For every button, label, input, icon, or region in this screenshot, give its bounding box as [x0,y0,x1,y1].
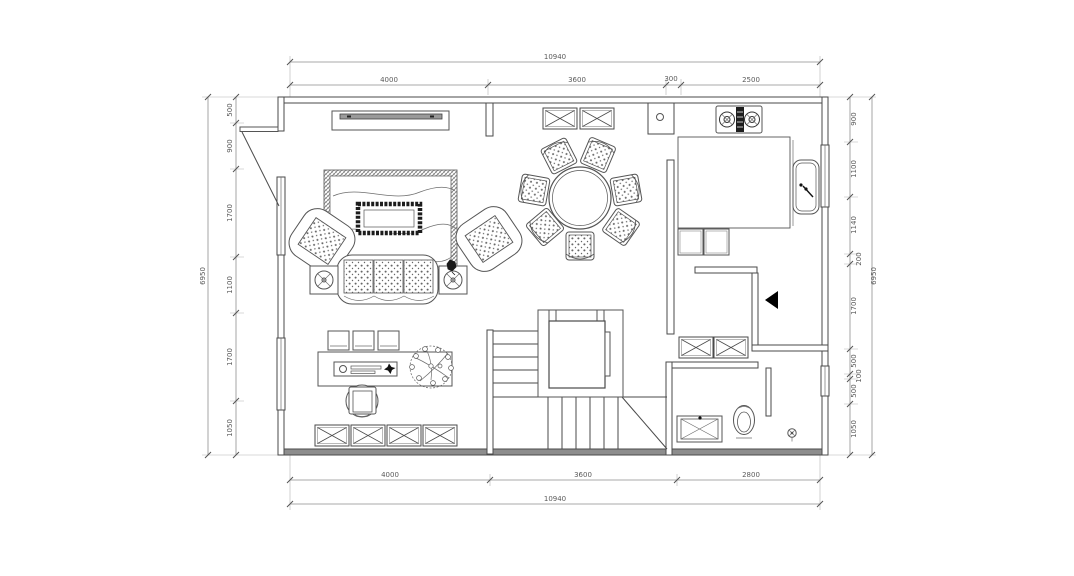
dining-chair-icon [518,174,550,206]
dim-bottom-overall: 10940 [544,495,566,503]
entry-door-swing [242,132,279,206]
dim-right-seg-8: 500 [850,384,858,397]
low-cabinet-icon [315,425,349,446]
window-right-bath [821,366,829,396]
dining-area [518,108,664,260]
wall-bath-top [666,362,758,368]
dim-right-seg-4: 200 [855,252,863,265]
wall-bath-left [666,362,672,455]
window-box-icon [543,108,577,129]
dim-left-seg-1: 500 [226,103,234,116]
dimension-chain-right: 900 1100 1140 200 1700 500 100 500 1050 … [828,94,878,458]
stair-upper-flight [493,331,538,397]
dim-right-seg-6: 500 [850,354,858,367]
dim-left-seg-6: 1050 [226,419,234,437]
dim-right-seg-7: 100 [855,369,863,382]
stove-icon [716,106,762,133]
dim-top-seg-4: 2500 [742,76,760,84]
low-cabinet-row [315,425,457,446]
direction-arrow-icon [765,291,778,309]
dim-top-seg-1: 4000 [380,76,398,84]
toilet-icon [734,406,755,439]
wall-stub-living-dining [486,103,493,136]
floor-plan-page: 10940 4000 3600 300 2500 4000 3600 2800 … [0,0,1074,576]
stairs [493,310,667,449]
low-cabinet-icon [423,425,457,446]
wall-stair-left [487,330,493,454]
dining-chair-icon [610,174,642,206]
wall-bath-partition [766,368,771,416]
living-room [283,111,528,304]
dining-table-icon [549,167,611,229]
dim-right-seg-1: 900 [850,112,858,125]
desk-chairs [328,331,399,350]
kitchen-counter-edge [678,137,790,228]
dimension-chain-bottom: 4000 3600 2800 10940 [287,455,823,510]
dim-left-seg-5: 1700 [226,348,234,366]
wall-top [278,97,828,103]
dim-bottom-seg-1: 4000 [381,471,399,479]
window-left-2 [277,338,285,410]
desk-tray [334,362,397,376]
stair-break-line [622,397,667,449]
dim-top-seg-3: 300 [664,75,677,83]
low-cabinet-icon [351,425,385,446]
dim-top-overall: 10940 [544,53,566,61]
sofa-icon [337,255,438,304]
vanity-icon [677,416,722,442]
dim-left-seg-4: 1100 [226,276,234,294]
wall-kitchen-bottom [695,267,757,273]
stair-treads-icon [548,397,618,449]
wall-left-upper [278,97,284,131]
dim-left-seg-2: 900 [226,139,234,152]
dimension-chain-top: 10940 4000 3600 300 2500 [287,53,823,97]
entry-door [240,127,279,206]
elevator-icon [538,310,623,397]
dim-left-overall: 6950 [199,267,207,285]
window-left-1 [277,177,285,255]
desk-chair-icon [346,385,378,417]
window-right-kitchen [821,145,829,207]
wall-corridor-left [752,273,758,351]
kitchen [678,106,819,255]
wall-lamp-icon [657,114,664,121]
bathroom [677,406,796,443]
study-corner [315,331,457,446]
dim-right-seg-9: 1050 [850,420,858,438]
kitchen-sink-icon [793,160,819,214]
dim-top-seg-2: 3600 [568,76,586,84]
dim-right-seg-3: 1140 [850,216,858,234]
wall-kitchen-left [667,160,674,334]
entry-door-leaf [240,127,278,132]
side-table-icon-left [310,266,338,294]
wall-corridor-bottom [752,345,828,351]
dining-chair-icon [566,232,594,260]
dim-bottom-seg-3: 2800 [742,471,760,479]
base-cabinet-icon [678,229,729,255]
closet-cabinet-icon [714,337,748,358]
wall-bottom [278,449,828,455]
dim-right-overall: 6950 [870,267,878,285]
closet-cabinet-icon [679,337,713,358]
dim-right-seg-5: 1700 [850,297,858,315]
tv-unit-icon [332,111,449,130]
dim-right-seg-2: 1100 [850,160,858,178]
coffee-table-icon [358,204,420,233]
low-cabinet-icon [387,425,421,446]
dim-left-seg-3: 1700 [226,204,234,222]
floor-plan-canvas: 10940 4000 3600 300 2500 4000 3600 2800 … [0,0,1074,576]
window-box-icon [580,108,614,129]
dimension-chain-left: 6950 500 900 1700 1100 1700 1050 [199,94,278,458]
dim-bottom-seg-2: 3600 [574,471,592,479]
floor-drain-icon [788,429,796,442]
